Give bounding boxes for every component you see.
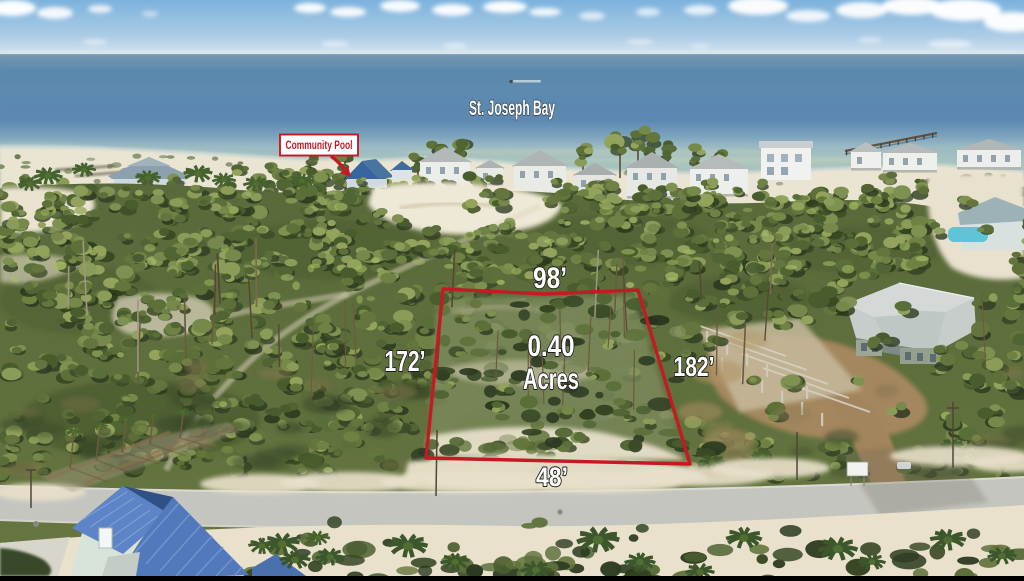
svg-text:172’: 172’ [385, 346, 426, 378]
svg-text:98’: 98’ [533, 262, 567, 295]
svg-text:St. Joseph Bay: St. Joseph Bay [469, 97, 555, 120]
svg-text:Community Pool: Community Pool [286, 140, 353, 152]
svg-text:Acres: Acres [523, 363, 579, 396]
svg-text:0.40: 0.40 [528, 330, 575, 363]
svg-text:48’: 48’ [536, 462, 568, 492]
svg-text:182’: 182’ [674, 351, 715, 382]
